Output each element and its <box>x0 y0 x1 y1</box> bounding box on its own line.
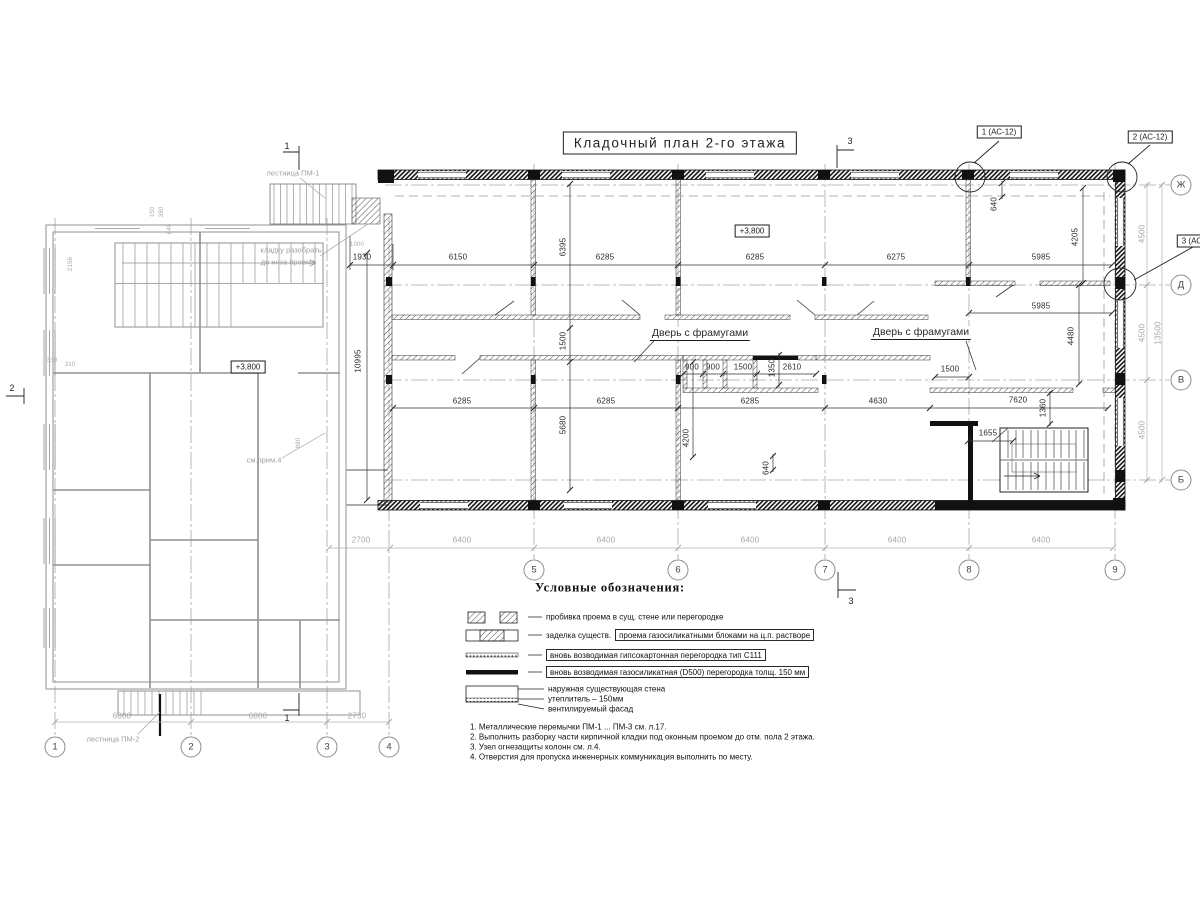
axis-bubble-9: 9 <box>1105 560 1126 581</box>
dimension-label: 4630 <box>869 397 888 406</box>
axis-bubble-7: 7 <box>815 560 836 581</box>
annotation-label: лестница ПМ-2 <box>87 735 140 744</box>
legend-title: Условные обозначения: <box>535 581 685 596</box>
dimension-label: 1000 <box>350 242 364 248</box>
legend-text: утеплитель – 150мм <box>548 695 623 704</box>
legend-wall-layer-2: утеплитель – 150мм <box>548 695 623 704</box>
section-mark-1: 1 <box>284 141 289 151</box>
legend-text: вентилируемый фасад <box>548 705 633 714</box>
dimension-label: 4500 <box>1138 324 1147 343</box>
level-mark: +3,800 <box>231 361 266 374</box>
dimension-label: 900 <box>706 363 720 372</box>
drawing-title: Кладочный план 2-го этажа <box>563 132 797 155</box>
dimension-label: 640 <box>990 197 999 211</box>
legend-item-gypsum-wall: вновь возводимая гипсокартонная перегоро… <box>546 649 766 661</box>
note-3: 3. Узел огнезащиты колонн см. л.4. <box>470 743 601 752</box>
legend-item-opening: пробивка проема в сущ. стене или перегор… <box>546 613 723 622</box>
detail-callout-2: 2 (АС-12) <box>1128 131 1173 144</box>
dimension-label: 310 <box>65 362 76 368</box>
annotation-label: кладку разобрать <box>260 246 321 255</box>
dimension-label: 1500 <box>734 363 753 372</box>
axis-bubble-5: 5 <box>524 560 545 581</box>
dimension-label: 6275 <box>887 253 906 262</box>
dimension-label: 6400 <box>597 536 616 545</box>
axis-bubble-Б: Б <box>1171 470 1192 491</box>
axis-bubble-8: 8 <box>959 560 980 581</box>
annotation-label: до низа проема <box>261 258 316 267</box>
axis-bubble-Д: Д <box>1171 275 1192 296</box>
dimension-label: 2156 <box>68 257 74 271</box>
detail-callout-1: 1 (АС-12) <box>977 126 1022 139</box>
dimension-label: 6000 <box>113 712 132 721</box>
dimension-label: 6400 <box>741 536 760 545</box>
dimension-label: 5680 <box>559 416 568 435</box>
dimension-label: 7620 <box>1009 396 1028 405</box>
dimension-label: 6395 <box>559 238 568 257</box>
dimension-label: 150 <box>150 207 156 218</box>
dimension-label: 6000 <box>249 712 268 721</box>
main-building <box>378 170 1125 510</box>
dimension-label: 1930 <box>353 253 372 262</box>
axis-bubble-Ж: Ж <box>1171 175 1192 196</box>
dimension-label: 2700 <box>352 536 371 545</box>
legend-text: заделка существ. <box>546 631 611 640</box>
legend-boxed-text: проема газосиликатными блоками на ц.п. р… <box>615 629 814 641</box>
axis-bubble-1: 1 <box>45 737 66 758</box>
dimension-label: 6285 <box>741 397 760 406</box>
dimension-label: 10995 <box>354 349 363 372</box>
dimension-label: 900 <box>685 363 699 372</box>
annotation-label: лестница ПМ-1 <box>267 169 320 178</box>
dimension-label: 880 <box>296 438 302 449</box>
dimension-label: 6400 <box>453 536 472 545</box>
dimension-label: 640 <box>167 224 173 235</box>
drawing-sheet: Кладочный план 2-го этажа Условные обозн… <box>0 0 1200 900</box>
stairs-main <box>1000 428 1088 492</box>
detail-callout-3: 3 (АС-12) <box>1177 235 1200 248</box>
note-4: 4. Отверстия для пропуска инженерных ком… <box>470 753 753 762</box>
section-mark-3: 3 <box>848 596 853 606</box>
legend-text: наружная существующая стена <box>548 685 665 694</box>
dimension-label: 13500 <box>1154 321 1163 344</box>
door-label: Дверь с фрамугами <box>871 326 971 340</box>
dimension-label: 1350 <box>768 359 777 378</box>
dimension-label: 4480 <box>1067 327 1076 346</box>
axis-bubble-В: В <box>1171 370 1192 391</box>
section-mark-2: 2 <box>9 383 14 393</box>
dimension-label: 4500 <box>1138 421 1147 440</box>
existing-building <box>44 184 388 736</box>
annotation-label: см.прим.4 <box>247 456 282 465</box>
dimension-label: 5985 <box>1032 302 1051 311</box>
dimension-label: 6285 <box>453 397 472 406</box>
dimension-label: 1500 <box>941 365 960 374</box>
dimension-label: 1360 <box>1039 399 1048 418</box>
legend-symbols <box>466 612 544 709</box>
axis-bubble-2: 2 <box>181 737 202 758</box>
dimension-label: 6400 <box>888 536 907 545</box>
dimension-label: 380 <box>159 207 165 218</box>
axis-bubble-4: 4 <box>379 737 400 758</box>
section-mark-1: 1 <box>284 713 289 723</box>
note-2: 2. Выполнить разборку части кирпичной кл… <box>470 733 815 742</box>
dimension-label: 6285 <box>597 397 616 406</box>
dimension-label: 4205 <box>1071 228 1080 247</box>
legend-item-infill: заделка существ. проема газосиликатными … <box>546 629 814 641</box>
dimension-label: 330 <box>47 358 58 364</box>
dimension-label: 2730 <box>348 712 367 721</box>
dimension-label: 6285 <box>596 253 615 262</box>
legend-wall-layer-3: вентилируемый фасад <box>548 705 633 714</box>
dimension-label: 2610 <box>783 363 802 372</box>
axis-bubble-6: 6 <box>668 560 689 581</box>
dimension-label: 6285 <box>746 253 765 262</box>
section-mark-3: 3 <box>847 136 852 146</box>
dimension-label: 640 <box>762 461 771 475</box>
door-label: Дверь с фрамугами <box>650 327 750 341</box>
dimension-label: 6400 <box>1032 536 1051 545</box>
dimension-label: 4500 <box>1138 225 1147 244</box>
dimension-label: 1655 <box>979 429 998 438</box>
dimension-label: 6150 <box>449 253 468 262</box>
legend-boxed-text: вновь возводимая гипсокартонная перегоро… <box>546 649 766 661</box>
legend-text: пробивка проема в сущ. стене или перегор… <box>546 613 723 622</box>
legend-wall-layer-1: наружная существующая стена <box>548 685 665 694</box>
dimension-label: 5985 <box>1032 253 1051 262</box>
level-mark: +3,800 <box>735 225 770 238</box>
legend-item-gas-silicate-wall: вновь возводимая газосиликатная (D500) п… <box>546 666 809 678</box>
dimension-label: 1500 <box>559 332 568 351</box>
axis-bubble-3: 3 <box>317 737 338 758</box>
note-1: 1. Металлические перемычки ПМ-1 ... ПМ-3… <box>470 723 667 732</box>
legend-boxed-text: вновь возводимая газосиликатная (D500) п… <box>546 666 809 678</box>
dimension-label: 4200 <box>682 429 691 448</box>
